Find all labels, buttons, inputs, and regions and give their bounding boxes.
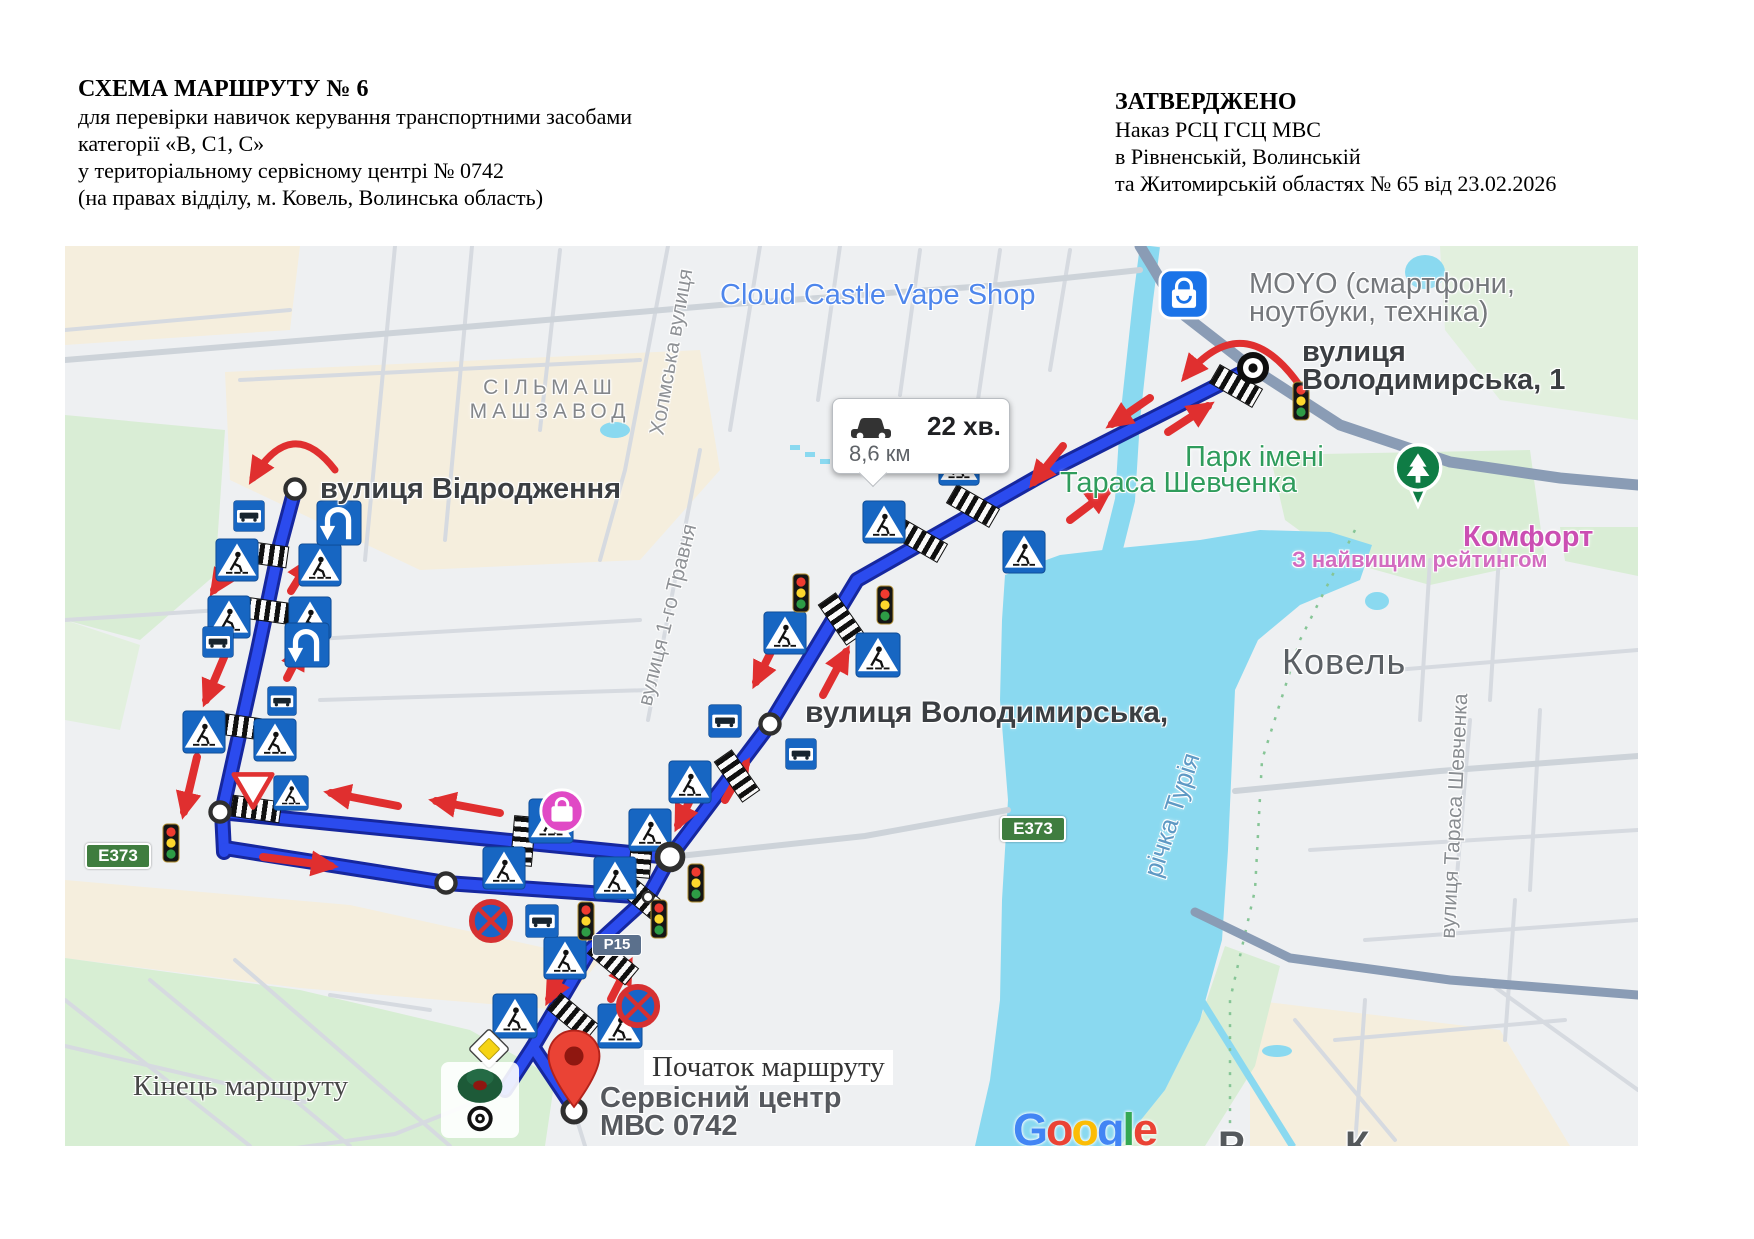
- route-waypoint-icon: [653, 840, 687, 874]
- approved-line: та Житомирській областях № 65 від 23.02.…: [1115, 170, 1556, 197]
- tree-pin-icon: [1391, 442, 1445, 512]
- header-left: СХЕМА МАРШРУТУ № 6 для перевірки навичок…: [78, 75, 632, 211]
- header-line: у територіальному сервісному центрі № 07…: [78, 157, 632, 184]
- bus-stop-sign-icon: [202, 626, 234, 658]
- traffic-light-icon: [873, 585, 897, 625]
- bus-stop-sign-icon: [267, 686, 297, 716]
- route-waypoint-icon: [641, 890, 655, 904]
- traffic-light-icon: [789, 573, 813, 613]
- no-stopping-sign-icon: [468, 898, 514, 944]
- direction-arrow: [184, 757, 197, 812]
- pedestrian-crossing-sign-icon: [215, 538, 259, 582]
- direction-arrow: [823, 652, 846, 695]
- city-label-kovel: Ковель: [1282, 641, 1406, 683]
- traffic-light-icon: [647, 899, 671, 939]
- poi-label-vape-shop: Cloud Castle Vape Shop: [720, 279, 1035, 312]
- pedestrian-crossing-sign-icon: [862, 500, 906, 544]
- route-distance: 8,6 км: [849, 441, 910, 467]
- route-waypoint-icon: [282, 476, 308, 502]
- pedestrian-crossing-sign-icon: [668, 760, 712, 804]
- header-line: (на правах відділу, м. Ковель, Волинська…: [78, 184, 632, 211]
- bus-stop-sign-icon: [785, 738, 817, 770]
- traffic-light-icon: [684, 863, 708, 903]
- header-line: категорії «В, С1, С»: [78, 130, 632, 157]
- header-right: ЗАТВЕРДЖЕНО Наказ РСЦ ГСЦ МВС в Рівненсь…: [1115, 88, 1556, 197]
- route-waypoint-icon: [207, 799, 233, 825]
- route-duration: 22 хв.: [927, 411, 1001, 442]
- bus-stop-sign-icon: [708, 704, 742, 738]
- pedestrian-crossing-sign-icon: [482, 846, 526, 890]
- poi-label-komfort-sub: З найвищим рейтингом: [1292, 547, 1548, 573]
- area-label-line: СІЛЬМАШ: [435, 376, 665, 400]
- street-label-vidrodzhennya: вулиця Відродження: [320, 473, 621, 506]
- road-shield-e373: E373: [85, 843, 151, 869]
- pedestrian-crossing-sign-icon: [543, 936, 587, 980]
- end-marker-icon: [438, 1060, 522, 1140]
- direction-arrow: [331, 793, 398, 806]
- cutoff-place-label: К: [1345, 1124, 1369, 1146]
- pedestrian-crossing-sign-icon: [593, 856, 637, 900]
- u-turn-sign-icon: [316, 500, 362, 546]
- document-page: СХЕМА МАРШРУТУ № 6 для перевірки навичок…: [0, 0, 1754, 1239]
- street-label-volodymyrska: вулиця Володимирська,: [805, 696, 1168, 730]
- pedestrian-crossing-sign-icon: [182, 710, 226, 754]
- route-info-bubble: 22 хв. 8,6 км: [832, 398, 1010, 474]
- route-map: E373 E373 Р15 22 хв. 8,6 км Cloud Castle…: [65, 246, 1638, 1146]
- area-label-line: МАШЗАВОД: [435, 400, 665, 424]
- approved-title: ЗАТВЕРДЖЕНО: [1115, 88, 1556, 116]
- pedestrian-crossing-sign-icon: [298, 543, 342, 587]
- no-stopping-sign-icon: [615, 983, 661, 1029]
- service-centre-label: МВС 0742: [600, 1110, 738, 1143]
- approved-line: в Рівненській, Волинській: [1115, 143, 1556, 170]
- approved-line: Наказ РСЦ ГСЦ МВС: [1115, 116, 1556, 143]
- pedestrian-crossing-sign-icon: [273, 775, 309, 811]
- bus-stop-sign-icon: [525, 904, 559, 938]
- area-label-silmash: СІЛЬМАШ МАШЗАВОД: [435, 376, 665, 424]
- route-turn-target-icon: [1235, 350, 1271, 386]
- street-label-volodymyrska-1: Володимирська, 1: [1302, 364, 1565, 397]
- document-title: СХЕМА МАРШРУТУ № 6: [78, 75, 632, 103]
- road-shield-p15: Р15: [592, 934, 642, 956]
- poi-label-moyo: ноутбуки, техніка): [1249, 296, 1489, 329]
- pedestrian-crossing-sign-icon: [1002, 530, 1046, 574]
- give-way-sign-icon: [231, 768, 275, 812]
- header-line: для перевірки навичок керування транспор…: [78, 103, 632, 130]
- pedestrian-crossing-sign-icon: [763, 611, 807, 655]
- route-waypoint-icon: [433, 870, 459, 896]
- u-turn-sign-icon: [284, 622, 330, 668]
- direction-arrow: [436, 801, 500, 813]
- park-label: Тараса Шевченка: [1060, 467, 1297, 500]
- google-logo: Google: [1013, 1104, 1156, 1146]
- traffic-light-icon: [159, 823, 183, 863]
- direction-arrow: [206, 655, 225, 700]
- pedestrian-crossing-sign-icon: [855, 632, 901, 678]
- pedestrian-crossing-sign-icon: [253, 718, 297, 762]
- bus-stop-sign-icon: [233, 500, 265, 532]
- car-icon: [847, 409, 895, 441]
- road-shield-e373: E373: [1000, 816, 1066, 842]
- route-end-label: Кінець маршруту: [133, 1070, 348, 1103]
- shopping-poi-icon: [537, 786, 587, 836]
- route-waypoint-icon: [757, 711, 783, 737]
- route-start-label: Початок маршруту: [644, 1050, 893, 1085]
- cutoff-place-label: Р: [1218, 1124, 1245, 1146]
- moyo-store-pin-icon: [1158, 268, 1210, 320]
